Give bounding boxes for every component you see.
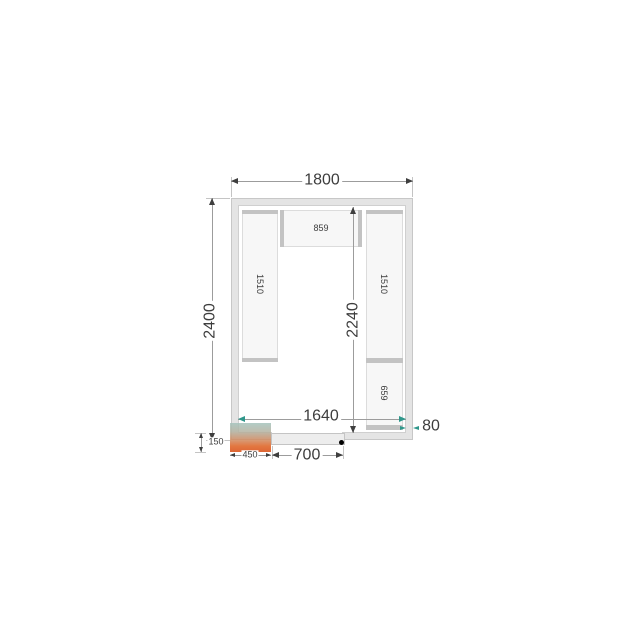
- arrowhead-icon: [406, 178, 413, 184]
- shelf-left-cap-bottom: [242, 358, 278, 362]
- shelf-top-cap-left: [280, 210, 284, 247]
- shelf-right-separator: [366, 358, 403, 363]
- cooling-unit-gradient-box: [230, 423, 271, 452]
- arrowhead-icon: [336, 452, 343, 458]
- arrowhead-icon: [199, 447, 203, 452]
- dimension-label-outer-width: 1800: [302, 173, 342, 190]
- arrowhead-icon: [230, 453, 235, 457]
- dimension-label-inner-width: 1640: [301, 409, 341, 426]
- arrowhead-icon: [400, 426, 406, 430]
- arrowhead-icon: [350, 426, 356, 433]
- arrowhead-icon: [272, 452, 279, 458]
- shelf-top-cap-right: [358, 210, 362, 247]
- dimension-label-door-width: 700: [292, 448, 323, 465]
- extension-line: [195, 452, 206, 453]
- dimension-label-inner-depth: 2240: [346, 300, 363, 340]
- door-hinge-dot: [339, 440, 344, 445]
- floor-plan-canvas: 859 1510 1510 659 1800 2400 2240 1640 80…: [0, 0, 640, 640]
- arrowhead-icon: [266, 453, 271, 457]
- extension-line: [343, 446, 344, 459]
- dimension-label-unit-width: 450: [241, 450, 258, 459]
- shelf-left-cap-top: [242, 210, 278, 214]
- dimension-label-outer-depth: 2400: [203, 301, 220, 341]
- shelf-right-cap-top: [366, 210, 403, 214]
- shelf-right-lower-dimension-label: 659: [379, 385, 389, 400]
- shelf-right-upper-dimension-label: 1510: [379, 274, 389, 294]
- shelf-left-dimension-label: 1510: [255, 274, 265, 294]
- arrowhead-icon: [413, 426, 419, 430]
- dimension-label-wall-thickness: 80: [420, 419, 442, 436]
- arrowhead-icon: [199, 433, 203, 438]
- arrowhead-icon: [399, 416, 406, 422]
- shelf-right-cap-bottom: [366, 425, 403, 430]
- arrowhead-icon: [238, 416, 245, 422]
- shelf-top-dimension-label: 859: [313, 223, 328, 233]
- arrowhead-icon: [209, 198, 215, 205]
- arrowhead-icon: [231, 178, 238, 184]
- door-leaf: [271, 433, 345, 445]
- dimension-label-unit-protrusion: 150: [207, 437, 224, 446]
- arrowhead-icon: [350, 207, 356, 214]
